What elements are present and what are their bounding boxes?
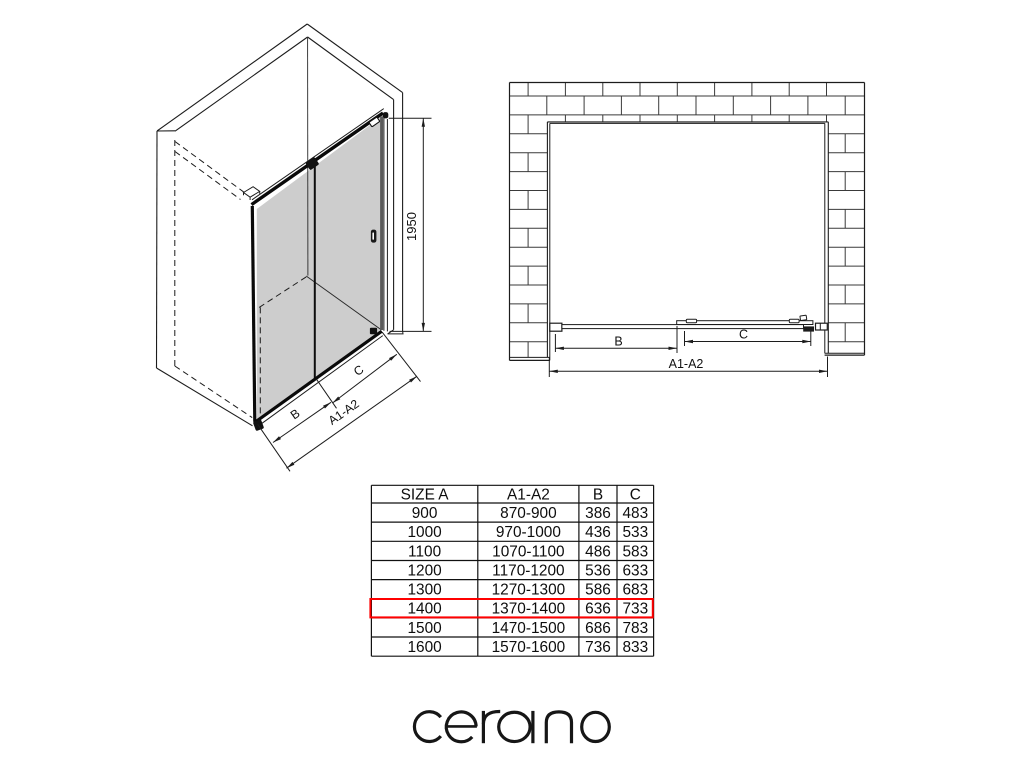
svg-text:833: 833 (622, 639, 648, 656)
svg-text:A1-A2: A1-A2 (507, 487, 550, 504)
svg-text:536: 536 (585, 562, 611, 579)
svg-text:1370-1400: 1370-1400 (492, 601, 566, 618)
svg-text:436: 436 (585, 524, 611, 541)
svg-text:970-1000: 970-1000 (496, 524, 561, 541)
svg-text:1170-1200: 1170-1200 (492, 562, 564, 579)
svg-text:1570-1600: 1570-1600 (492, 639, 566, 656)
svg-text:1950: 1950 (404, 212, 419, 241)
svg-text:683: 683 (622, 582, 648, 599)
svg-text:1100: 1100 (408, 543, 441, 560)
svg-text:533: 533 (622, 524, 648, 541)
svg-text:900: 900 (412, 505, 438, 522)
svg-text:1000: 1000 (407, 524, 441, 541)
svg-text:SIZE A: SIZE A (401, 487, 450, 504)
svg-text:B: B (288, 406, 303, 422)
svg-text:636: 636 (585, 601, 611, 618)
svg-text:1500: 1500 (407, 620, 441, 637)
svg-text:783: 783 (622, 620, 648, 637)
svg-text:486: 486 (585, 543, 611, 560)
svg-text:870-900: 870-900 (500, 505, 556, 522)
svg-text:1470-1500: 1470-1500 (492, 620, 566, 637)
svg-text:C: C (351, 362, 366, 379)
svg-text:1400: 1400 (407, 601, 441, 618)
svg-text:C: C (630, 487, 641, 504)
svg-text:633: 633 (622, 562, 648, 579)
svg-text:733: 733 (622, 601, 648, 618)
svg-text:686: 686 (585, 620, 611, 637)
svg-text:736: 736 (585, 639, 611, 656)
svg-text:1200: 1200 (407, 562, 441, 579)
svg-text:B: B (593, 487, 603, 504)
svg-text:1600: 1600 (407, 639, 441, 656)
svg-text:1300: 1300 (407, 582, 441, 599)
svg-text:C: C (739, 327, 748, 341)
svg-text:583: 583 (622, 543, 648, 560)
svg-text:A1-A2: A1-A2 (669, 357, 704, 371)
svg-text:386: 386 (585, 505, 611, 522)
svg-text:586: 586 (585, 582, 611, 599)
svg-text:1070-1100: 1070-1100 (492, 543, 564, 560)
svg-text:1270-1300: 1270-1300 (492, 582, 566, 599)
svg-text:483: 483 (622, 505, 648, 522)
svg-text:B: B (614, 334, 622, 348)
